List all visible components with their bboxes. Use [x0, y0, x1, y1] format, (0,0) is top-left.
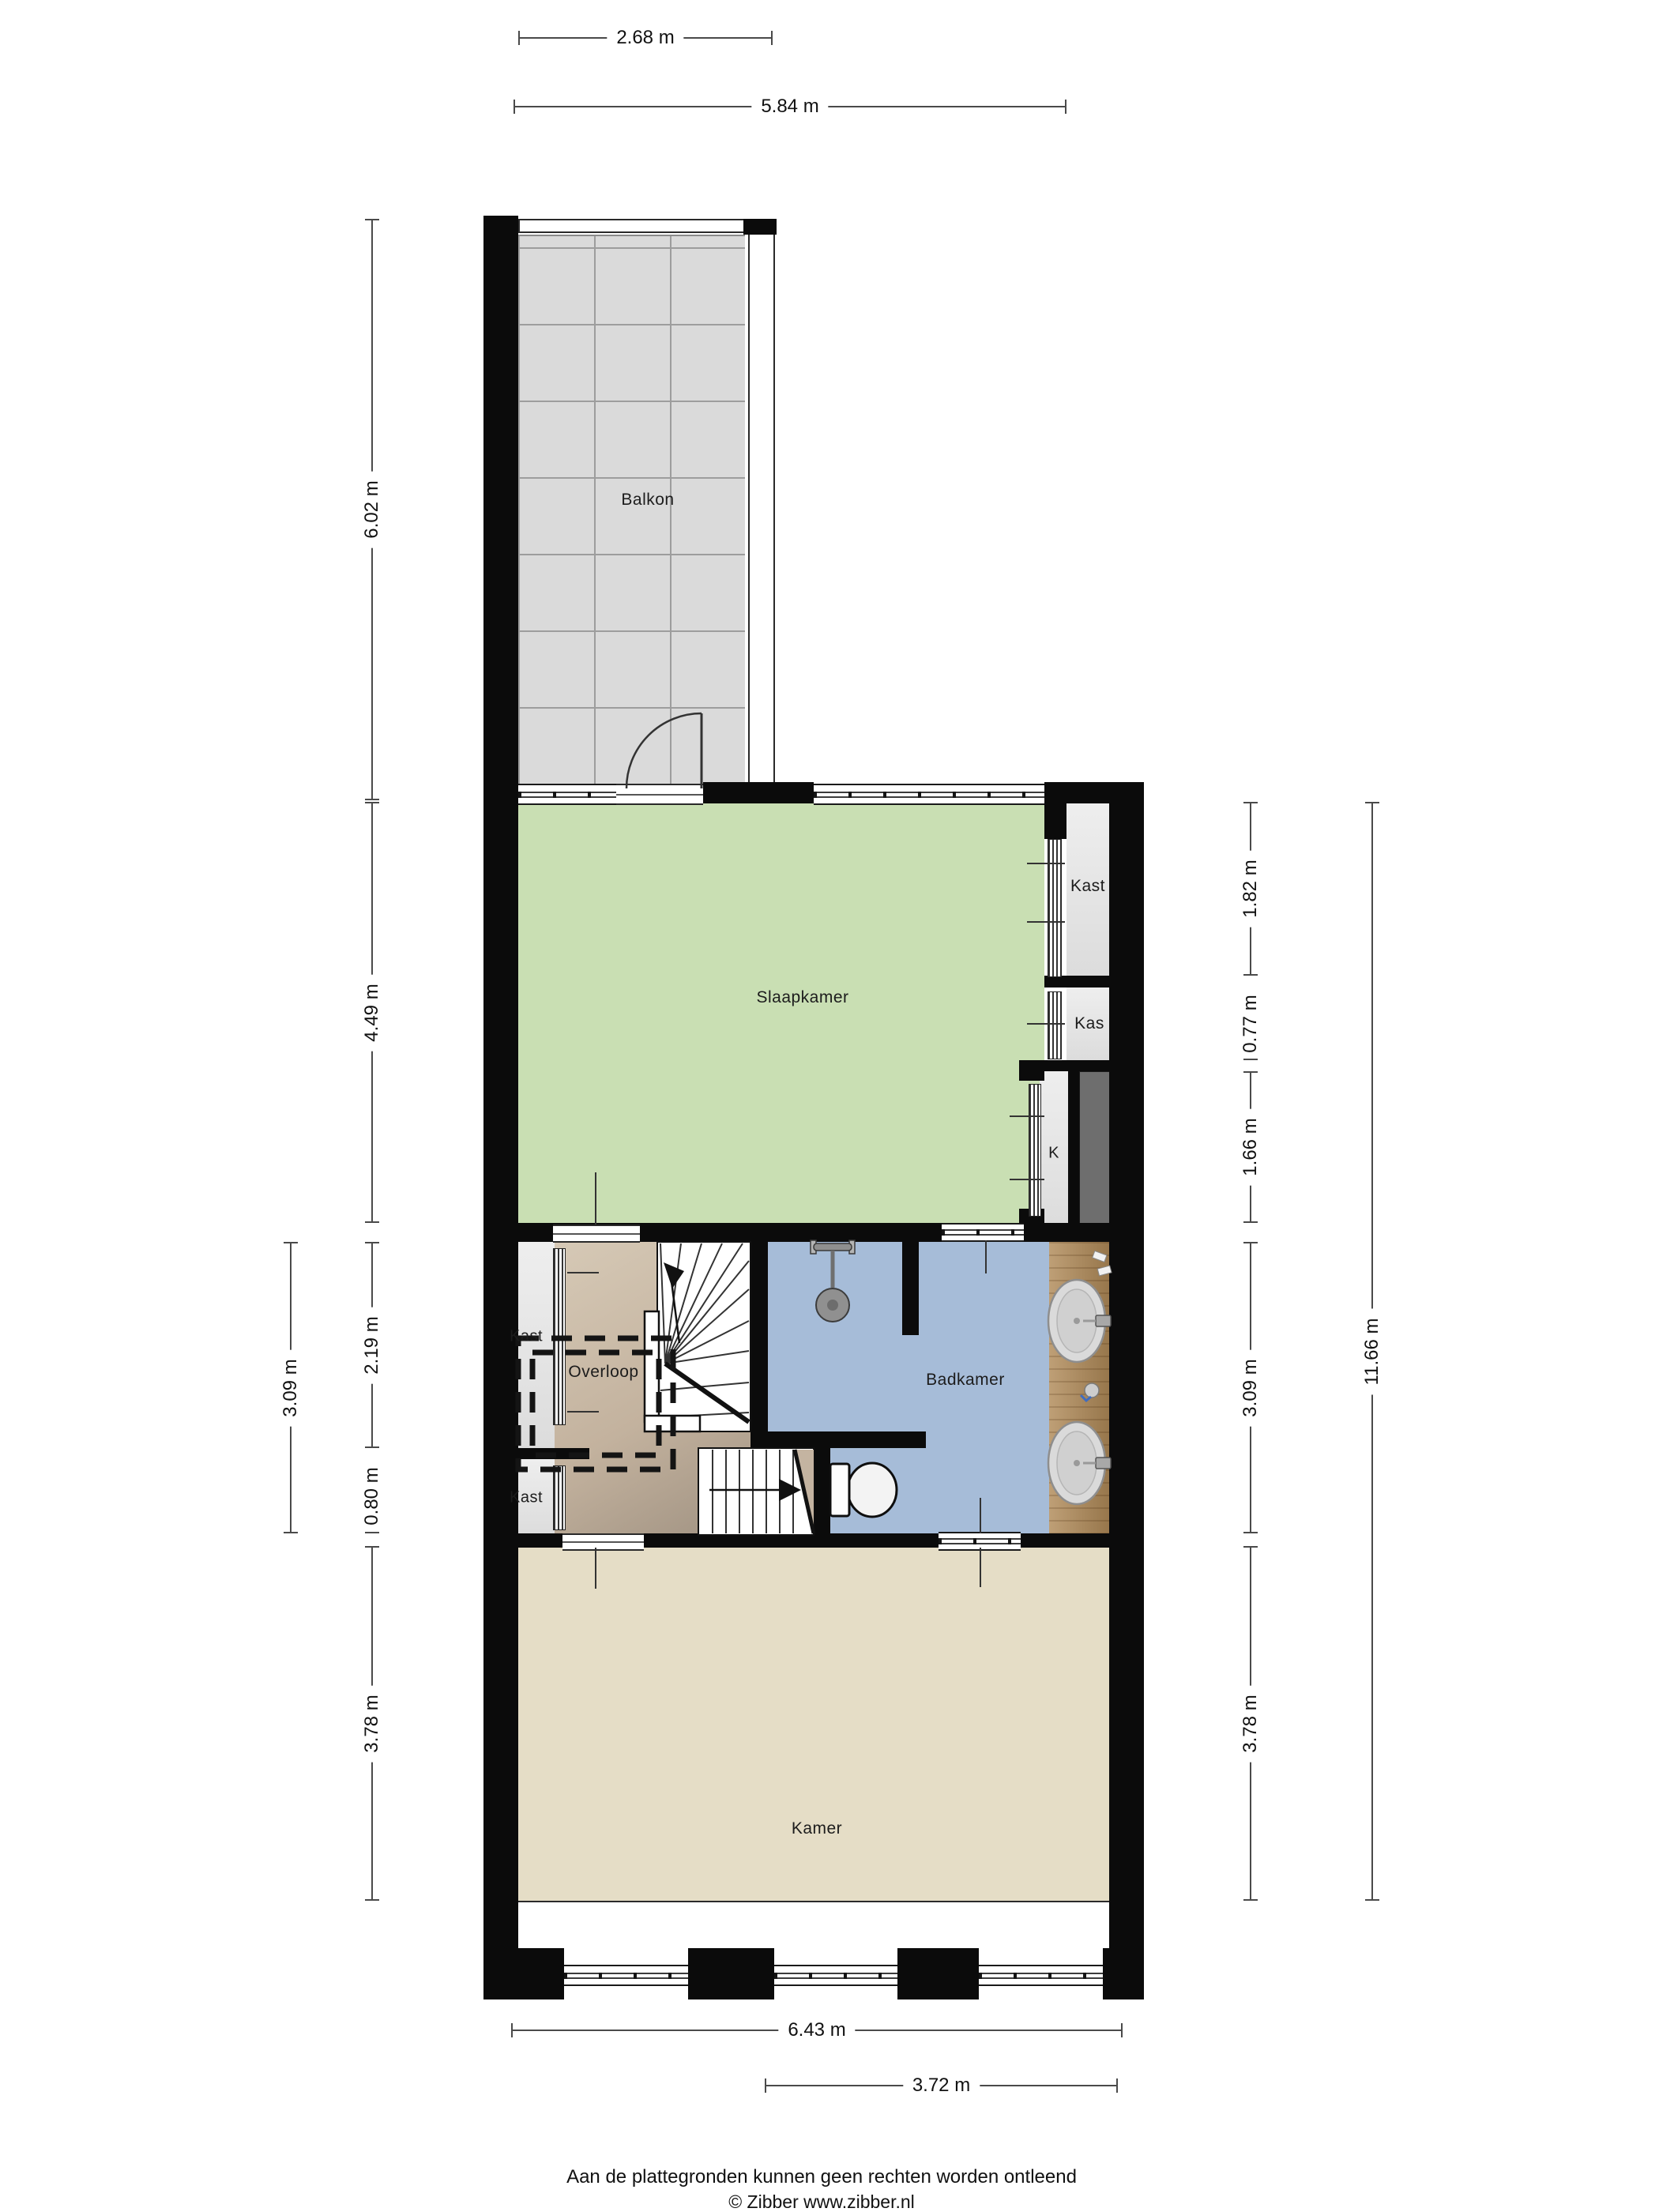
kast-klein-label: Kast — [510, 1489, 543, 1507]
opening-balkon — [616, 784, 703, 805]
window-badkamer-top — [942, 1223, 1024, 1242]
balkon-railing-cap — [743, 219, 777, 235]
wall-left-exterior — [483, 216, 518, 1999]
wall-top-right — [1044, 782, 1144, 803]
tick — [1027, 1023, 1065, 1025]
wall-badkamer-horiz — [750, 1431, 926, 1448]
wall-top-mid — [703, 782, 814, 803]
k-label: K — [1048, 1145, 1059, 1163]
schuifdeur-k — [1029, 1084, 1041, 1217]
wall-kast-overloop-stub — [518, 1448, 589, 1459]
tick — [567, 1411, 599, 1413]
kas-label: Kas — [1074, 1014, 1104, 1033]
schuifdeur-kast-slaapkamer — [1048, 839, 1062, 977]
kast-slaapkamer-label: Kast — [1070, 877, 1105, 896]
tick — [567, 1272, 599, 1273]
overloop-floor — [555, 1242, 768, 1535]
erker-strook — [518, 1901, 1109, 1950]
kast-overloop-label: Kast — [510, 1328, 543, 1346]
wall-kas-k-corner — [1019, 1060, 1044, 1081]
schuifdeur-kas — [1048, 991, 1062, 1059]
tick — [985, 1240, 987, 1273]
wall-k-schacht — [1068, 1071, 1079, 1228]
window-balkon-deur — [518, 784, 616, 805]
wall-toilet-trap — [814, 1448, 830, 1535]
floorplan-canvas: Balkon Slaapkamer Kast Kas K Kast Overlo… — [0, 0, 1659, 2212]
overloop-label: Overloop — [568, 1363, 638, 1382]
tick — [1010, 1179, 1044, 1180]
schuifdeur-kast-overloop — [553, 1248, 566, 1425]
tick — [980, 1498, 981, 1533]
tick — [1027, 921, 1065, 923]
kamer-label: Kamer — [792, 1819, 842, 1838]
slaapkamer-label: Slaapkamer — [756, 988, 848, 1007]
tick — [595, 1548, 596, 1589]
tick — [595, 1172, 596, 1224]
wall-douche-stub — [902, 1242, 919, 1335]
schuifdeur-kast-klein — [553, 1465, 566, 1530]
balkon-floor — [518, 235, 745, 785]
balkon-label: Balkon — [621, 491, 674, 510]
window-kamer-1 — [564, 1965, 688, 1986]
wastafel-meubel — [1049, 1242, 1109, 1535]
opening-overloop-kamer — [562, 1533, 644, 1551]
balkon-railing-right — [748, 222, 775, 790]
slaapkamer-floor — [518, 802, 1044, 1223]
disclaimer-text: Aan de plattegronden kunnen geen rechten… — [0, 2166, 1643, 2188]
wall-trap-badkamer — [750, 1242, 768, 1431]
balkon-railing-top — [518, 219, 745, 233]
window-kamer-3 — [979, 1965, 1103, 1986]
wall-kas-k — [1044, 1060, 1109, 1071]
wall-kast1-stub — [1044, 802, 1066, 839]
kamer-floor — [518, 1546, 1109, 1901]
opening-slaapkamer-overloop — [553, 1224, 640, 1243]
tick — [1027, 863, 1065, 864]
tick — [1010, 1115, 1044, 1117]
wall-kast1-kas — [1044, 976, 1109, 987]
schacht — [1079, 1071, 1111, 1230]
badkamer-label: Badkamer — [926, 1371, 1005, 1390]
window-kamer-2 — [774, 1965, 897, 1986]
tick — [980, 1548, 981, 1587]
copyright-text: © Zibber www.zibber.nl — [0, 2191, 1643, 2212]
window-slaapkamer-top — [814, 784, 1044, 805]
wall-right-exterior — [1109, 784, 1144, 1999]
